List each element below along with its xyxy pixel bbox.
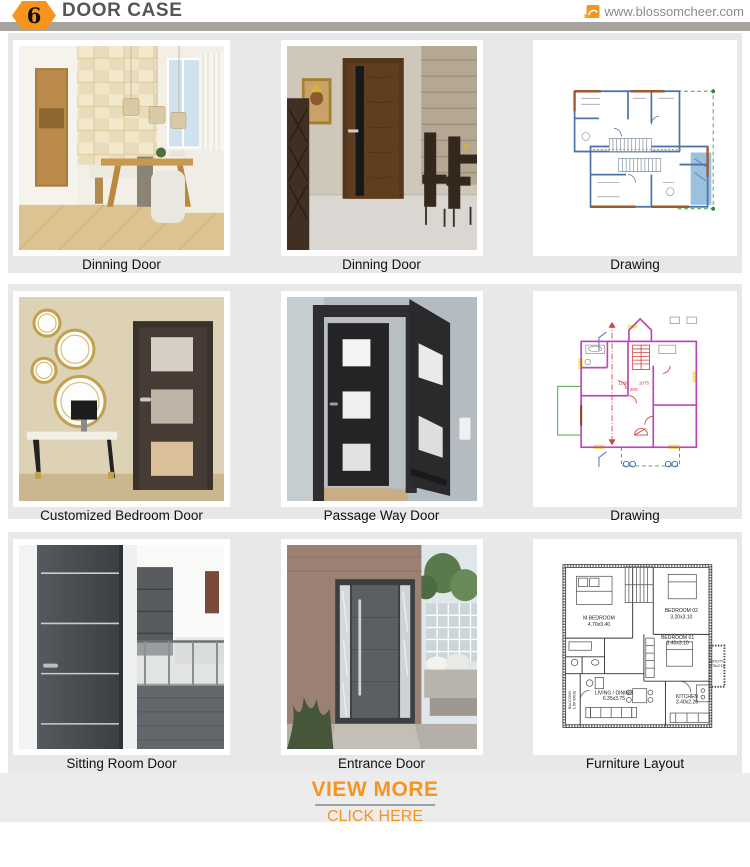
card-caption: Dinning Door	[13, 256, 230, 273]
plan-dim-label: 200	[630, 387, 638, 392]
room-dim-balcony: 1.50 WIDE	[572, 690, 577, 709]
header-divider-bar	[0, 22, 750, 31]
card-caption: Customized Bedroom Door	[13, 507, 230, 524]
card-drawing-1: Drawing	[533, 40, 737, 273]
room-label-utility: UTILITY	[710, 659, 724, 663]
entrance-door-photo	[287, 545, 477, 749]
card-caption: Drawing	[533, 507, 737, 524]
page-header: 6 DOOR CASE www.blossomcheer.com	[0, 0, 750, 31]
plan-card	[533, 40, 737, 256]
photo-card	[281, 539, 483, 755]
card-customized-bedroom-door: Customized Bedroom Door	[13, 291, 230, 524]
plan-card: M.BEDROOM 4.70x3.40 BEDROOM 02 3.20x3.10…	[533, 539, 737, 755]
section-number: 6	[27, 3, 42, 28]
card-entrance-door: Entrance Door	[281, 539, 483, 772]
card-dinning-door-1: Dinning Door	[13, 40, 230, 273]
plan-dim-label: 1075	[639, 380, 650, 385]
room-label-mbedroom: M.BEDROOM	[583, 615, 615, 621]
card-caption: Dinning Door	[281, 256, 483, 273]
pink-floor-plan-drawing: 1130 1075 200	[539, 297, 731, 501]
card-caption: Entrance Door	[281, 755, 483, 772]
photo-card	[13, 291, 230, 507]
card-furniture-layout: M.BEDROOM 4.70x3.40 BEDROOM 02 3.20x3.10…	[533, 539, 737, 772]
website-url: www.blossomcheer.com	[605, 4, 744, 19]
photo-card	[281, 40, 483, 256]
card-drawing-2: 1130 1075 200 Drawing	[533, 291, 737, 524]
room-label-bedroom02: BEDROOM 02	[665, 608, 698, 614]
photo-card	[13, 539, 230, 755]
room-dim-living: 6.35x3.75	[603, 696, 625, 702]
sitting-room-door-photo	[19, 545, 224, 749]
click-here-link[interactable]: CLICK HERE	[327, 808, 423, 826]
case-row-3: Sitting Room Door	[8, 532, 742, 773]
furniture-layout-plan: M.BEDROOM 4.70x3.40 BEDROOM 02 3.20x3.10…	[539, 545, 731, 749]
card-caption: Passage Way Door	[281, 507, 483, 524]
page-title: DOOR CASE	[62, 0, 182, 22]
door-case-page: 6 DOOR CASE www.blossomcheer.com	[0, 0, 750, 867]
room-dim-kitchen: 3.40x2.20	[676, 700, 698, 706]
room-dim-mbedroom: 4.70x3.40	[588, 622, 610, 628]
room-dim-bedroom02: 3.20x3.10	[670, 614, 692, 620]
plan-card: 1130 1075 200	[533, 291, 737, 507]
card-dinning-door-2: Dinning Door	[281, 40, 483, 273]
passage-door-photo	[287, 297, 477, 501]
footer-divider	[315, 804, 435, 806]
footer-banner: VIEW MORE CLICK HERE	[0, 773, 750, 822]
card-caption: Sitting Room Door	[13, 755, 230, 772]
walnut-door-photo	[287, 46, 477, 250]
card-sitting-room-door: Sitting Room Door	[13, 539, 230, 772]
website-link[interactable]: www.blossomcheer.com	[584, 3, 744, 20]
blue-floor-plan-drawing	[539, 46, 731, 250]
case-row-1: Dinning Door	[8, 33, 742, 273]
view-more-link[interactable]: VIEW MORE	[311, 778, 438, 802]
bedroom-door-photo	[19, 297, 224, 501]
card-caption: Furniture Layout	[533, 755, 737, 772]
card-passage-way-door: Passage Way Door	[281, 291, 483, 524]
photo-card	[13, 40, 230, 256]
room-dim-utility: 1.70x2.10	[709, 664, 725, 668]
dining-room-photo	[19, 46, 224, 250]
plan-dim-label: 1130	[618, 380, 628, 385]
card-caption: Drawing	[533, 256, 737, 273]
room-dim-bedroom01: 3.40x3.10	[667, 641, 689, 647]
case-row-2: Customized Bedroom Door	[8, 284, 742, 519]
photo-card	[281, 291, 483, 507]
brand-logo-icon	[584, 3, 601, 20]
